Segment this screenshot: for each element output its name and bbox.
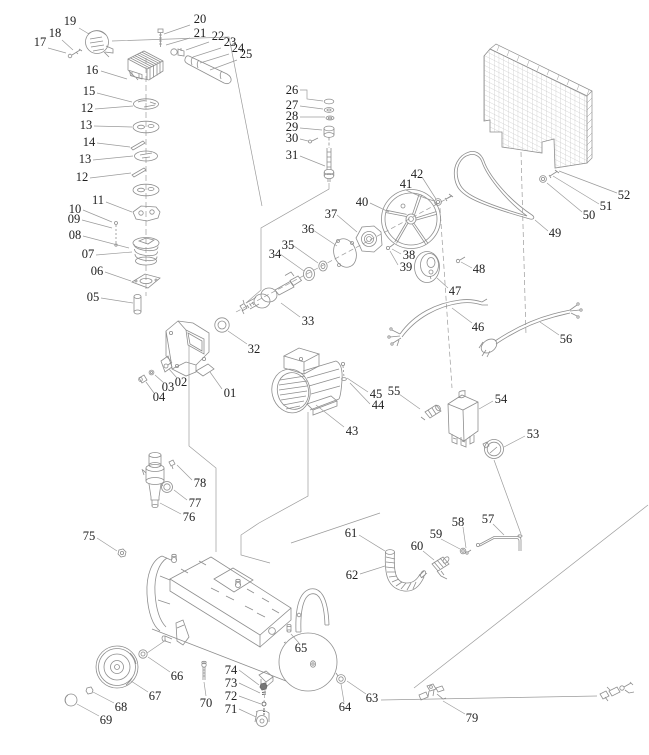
- svg-text:33: 33: [302, 314, 315, 328]
- svg-text:07: 07: [82, 247, 95, 261]
- svg-text:22: 22: [212, 29, 225, 43]
- svg-text:70: 70: [200, 696, 213, 710]
- svg-text:63: 63: [366, 691, 379, 705]
- svg-text:67: 67: [149, 689, 162, 703]
- svg-text:17: 17: [34, 35, 47, 49]
- svg-text:55: 55: [388, 384, 401, 398]
- svg-text:35: 35: [282, 238, 295, 252]
- svg-text:64: 64: [339, 700, 352, 714]
- svg-text:40: 40: [356, 195, 369, 209]
- svg-text:32: 32: [248, 342, 261, 356]
- svg-text:56: 56: [560, 332, 573, 346]
- svg-text:57: 57: [482, 512, 495, 526]
- svg-text:73: 73: [225, 676, 238, 690]
- svg-text:04: 04: [153, 390, 166, 404]
- svg-text:19: 19: [64, 14, 77, 28]
- svg-text:31: 31: [286, 148, 299, 162]
- svg-text:45: 45: [370, 387, 383, 401]
- svg-text:51: 51: [600, 199, 613, 213]
- svg-text:47: 47: [449, 284, 462, 298]
- svg-text:16: 16: [86, 63, 99, 77]
- svg-text:62: 62: [346, 568, 359, 582]
- svg-text:09: 09: [68, 212, 81, 226]
- svg-text:43: 43: [346, 424, 359, 438]
- svg-text:54: 54: [495, 392, 508, 406]
- svg-text:18: 18: [49, 26, 62, 40]
- svg-text:65: 65: [295, 641, 308, 655]
- svg-text:05: 05: [87, 290, 100, 304]
- svg-text:49: 49: [549, 226, 562, 240]
- svg-text:21: 21: [194, 26, 207, 40]
- svg-text:30: 30: [286, 131, 299, 145]
- svg-text:25: 25: [240, 47, 253, 61]
- svg-text:13: 13: [79, 152, 92, 166]
- svg-text:15: 15: [83, 84, 96, 98]
- svg-text:08: 08: [69, 228, 82, 242]
- svg-text:48: 48: [473, 262, 486, 276]
- svg-text:46: 46: [472, 320, 485, 334]
- svg-text:37: 37: [325, 207, 338, 221]
- svg-text:79: 79: [466, 711, 479, 725]
- svg-text:13: 13: [80, 118, 93, 132]
- svg-text:75: 75: [83, 529, 96, 543]
- svg-text:60: 60: [411, 539, 424, 553]
- svg-text:78: 78: [194, 476, 207, 490]
- svg-text:68: 68: [115, 700, 128, 714]
- svg-text:53: 53: [527, 427, 540, 441]
- svg-text:06: 06: [91, 264, 104, 278]
- svg-text:50: 50: [583, 208, 596, 222]
- svg-text:12: 12: [76, 170, 89, 184]
- svg-text:77: 77: [189, 496, 202, 510]
- svg-text:36: 36: [302, 222, 315, 236]
- svg-text:11: 11: [92, 193, 104, 207]
- svg-text:26: 26: [286, 83, 299, 97]
- svg-text:66: 66: [171, 669, 184, 683]
- svg-text:14: 14: [83, 135, 96, 149]
- svg-text:01: 01: [224, 386, 237, 400]
- svg-text:52: 52: [618, 188, 631, 202]
- svg-text:71: 71: [225, 702, 238, 716]
- svg-text:61: 61: [345, 526, 358, 540]
- svg-text:59: 59: [430, 527, 443, 541]
- svg-text:12: 12: [81, 101, 94, 115]
- svg-text:39: 39: [400, 260, 413, 274]
- svg-text:42: 42: [411, 167, 424, 181]
- svg-text:20: 20: [194, 12, 207, 26]
- svg-text:76: 76: [183, 510, 196, 524]
- svg-text:58: 58: [452, 515, 465, 529]
- svg-text:74: 74: [225, 663, 238, 677]
- svg-text:72: 72: [225, 689, 238, 703]
- svg-text:69: 69: [100, 713, 113, 727]
